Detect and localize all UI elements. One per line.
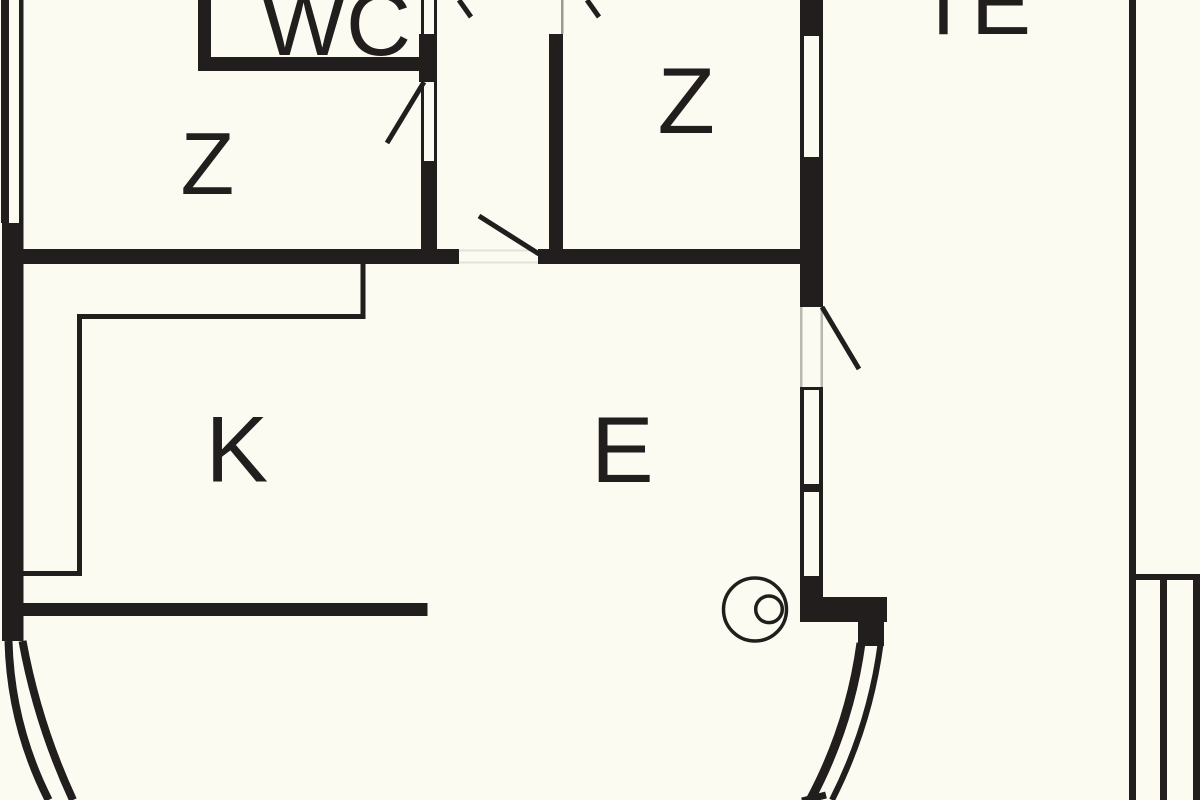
svg-text:Z: Z	[181, 114, 235, 213]
svg-text:E: E	[591, 397, 654, 502]
svg-text:TE: TE	[916, 0, 1031, 54]
svg-text:WC: WC	[261, 0, 411, 75]
svg-text:K: K	[206, 397, 269, 502]
svg-text:Z: Z	[658, 48, 715, 153]
